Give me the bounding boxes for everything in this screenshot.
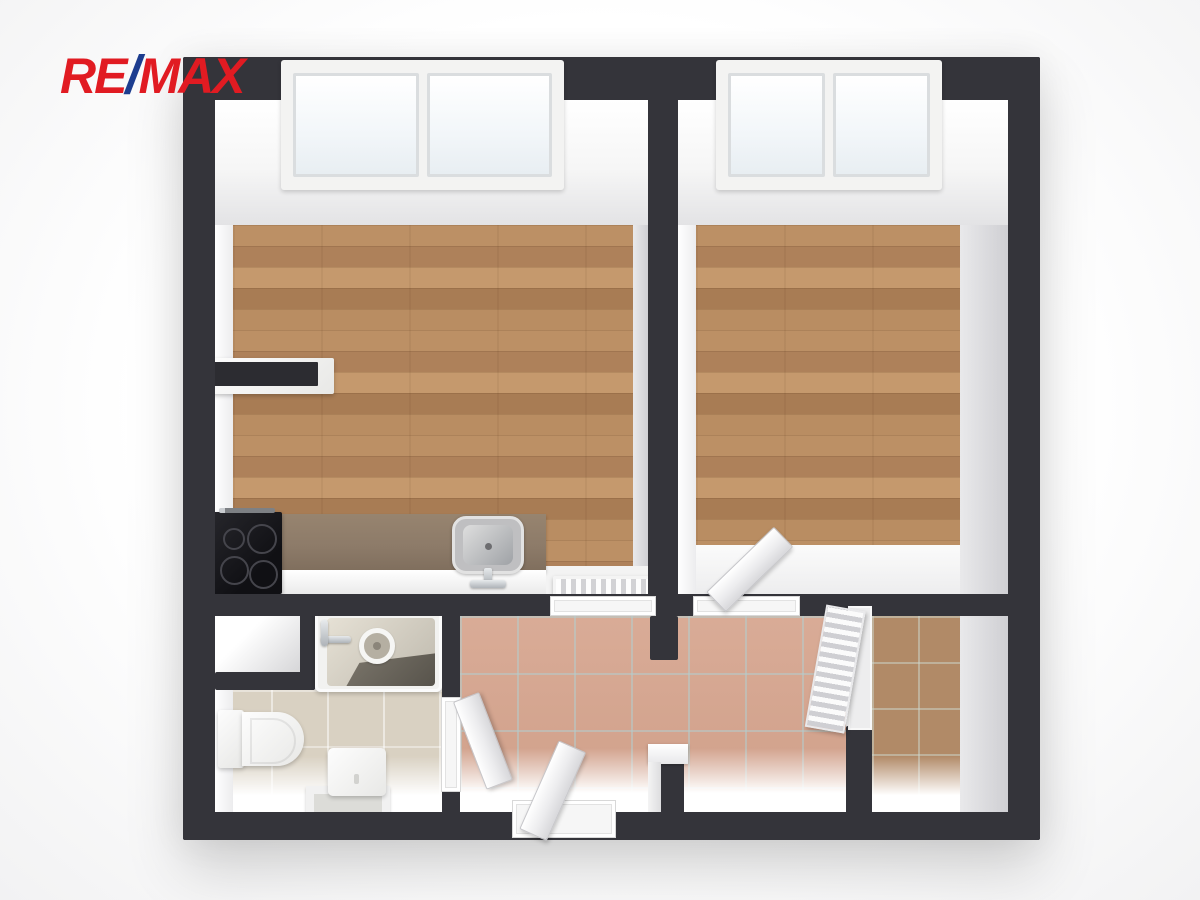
- bedroom-window: [716, 60, 942, 190]
- bathtub-drain: [359, 628, 395, 664]
- bathtub: [315, 610, 442, 692]
- window-pane: [427, 73, 553, 177]
- stove: [213, 512, 282, 594]
- wall-shelf: [210, 358, 334, 394]
- niche-closet: [215, 616, 300, 672]
- washing-machine: [328, 748, 386, 796]
- toilet-bowl: [242, 712, 304, 766]
- living-room-east-wall-face: [633, 225, 648, 594]
- bedroom-doorway: [693, 596, 800, 616]
- window-pane: [728, 73, 825, 177]
- stove-burner: [220, 556, 249, 585]
- storage-hallway-wall: [846, 726, 872, 825]
- west-wall: [183, 57, 215, 840]
- hallway-wall-stub: [650, 616, 678, 660]
- toilet-seat: [250, 718, 296, 764]
- bedroom-west-wall-face: [678, 225, 696, 594]
- east-wall: [1008, 57, 1040, 840]
- entrance-wall-stub-cap: [648, 744, 688, 764]
- bathtub-drain-cap: [373, 642, 381, 650]
- washing-machine-detail: [354, 774, 359, 784]
- niche-south-wall: [215, 672, 315, 690]
- living-room-window: [281, 60, 564, 190]
- sink-faucet-bar: [470, 580, 506, 588]
- storage-east-wall-face: [960, 616, 1008, 812]
- bedroom-east-wall-face: [960, 225, 1008, 594]
- storage-south-wall-face: [872, 756, 960, 812]
- stove-burner: [247, 524, 277, 554]
- bath-shower-hose: [321, 620, 328, 646]
- wall-shelf-top: [214, 362, 318, 386]
- remax-logo: RE/MAX: [60, 48, 244, 102]
- kitchen-sink: [452, 516, 524, 574]
- stove-burner: [249, 560, 278, 589]
- sink-drain: [485, 543, 492, 550]
- stove-burner: [223, 528, 245, 550]
- logo-max: MAX: [138, 48, 243, 104]
- logo-re: RE: [60, 48, 125, 104]
- entrance-wall-stub-face: [648, 762, 661, 812]
- window-pane: [833, 73, 930, 177]
- floorplan-render: RE/MAX: [0, 0, 1200, 900]
- bedroom-wood-floor: [696, 225, 960, 545]
- stove-knobs: [219, 508, 275, 513]
- living-room-doorway: [550, 596, 656, 616]
- logo-slash: /: [125, 45, 138, 105]
- partition-wall-center: [648, 57, 678, 616]
- window-pane: [293, 73, 419, 177]
- toilet-cistern: [218, 710, 244, 768]
